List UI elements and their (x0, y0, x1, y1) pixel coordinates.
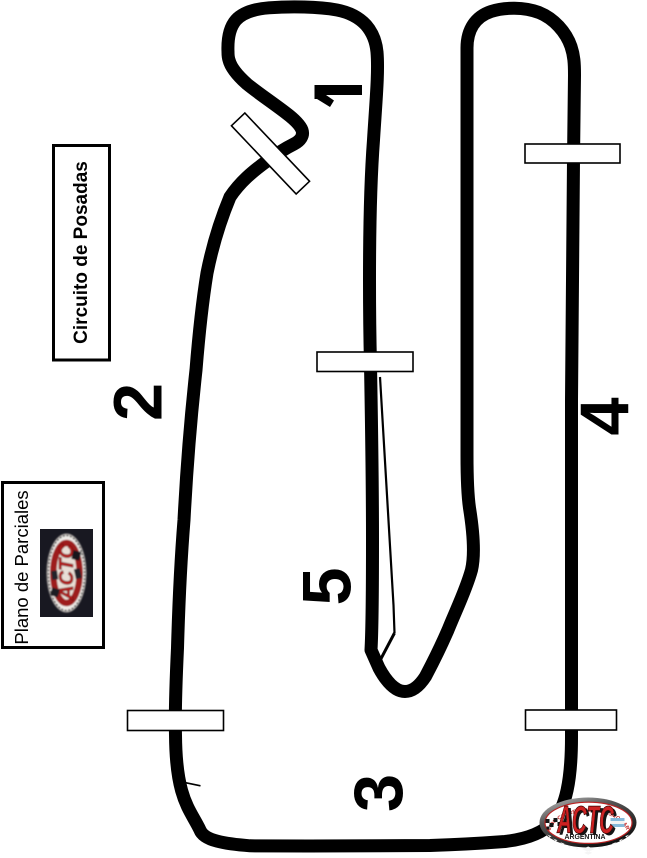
svg-text:ARGENTINA: ARGENTINA (565, 834, 606, 841)
svg-text:3: 3 (340, 774, 417, 812)
svg-text:ASOCIACION CORREDORES TURISMO: ASOCIACION CORREDORES TURISMO CARRETERA (0, 0, 630, 832)
svg-text:2: 2 (100, 383, 177, 421)
svg-text:Plano de Parciales: Plano de Parciales (11, 490, 32, 644)
svg-text:Circuito de Posadas: Circuito de Posadas (71, 161, 92, 344)
svg-text:5: 5 (289, 567, 366, 605)
svg-text:4: 4 (566, 397, 643, 435)
